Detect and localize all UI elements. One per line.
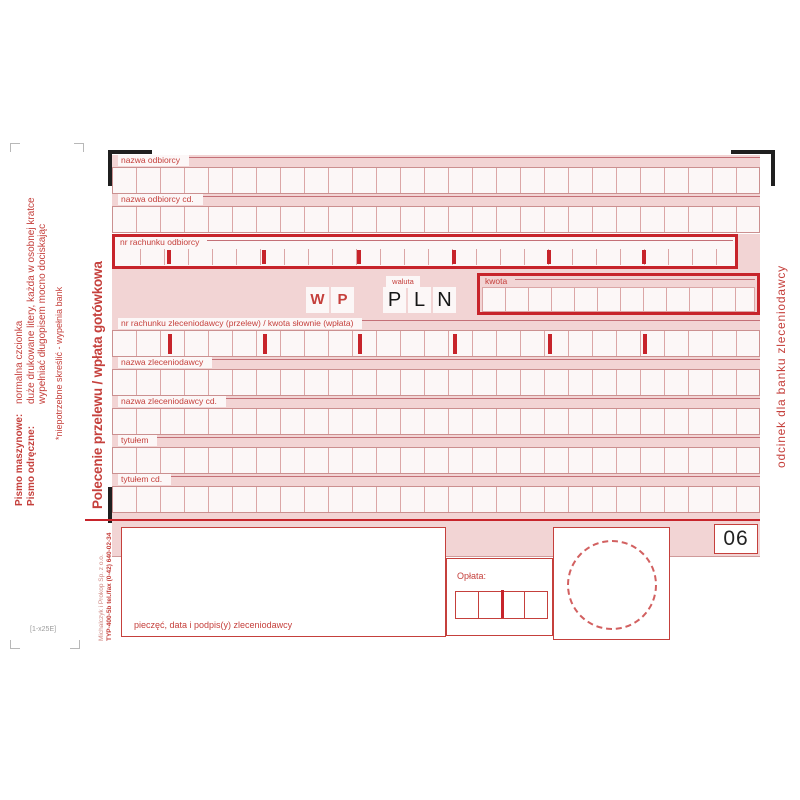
crop-mark-top-right — [74, 143, 84, 152]
row-recipient-name-cont-cells[interactable] — [112, 206, 760, 233]
row-payer-name-cont-labelband: nazwa zleceniodawcy cd. — [112, 396, 760, 408]
registration-corner-top-left — [108, 150, 152, 154]
wp-marker-w-box[interactable]: W — [306, 287, 329, 313]
fee-label: Opłata: — [457, 571, 486, 581]
amount-box: kwota — [477, 273, 760, 315]
account-group-tick — [168, 334, 172, 354]
row-transfer-title-cont-cells[interactable] — [112, 486, 760, 513]
registration-corner-top-right — [731, 150, 775, 154]
amount-cells[interactable] — [482, 287, 755, 312]
row-transfer-title-label: tytułem — [118, 435, 157, 446]
account-group-tick — [262, 250, 266, 264]
instruction-label — [37, 404, 49, 506]
print-code: [1-x25E] — [30, 626, 56, 633]
instruction-label: Pismo odręczne: — [26, 404, 38, 506]
row-recipient-name-cont-label: nazwa odbiorcy cd. — [118, 194, 203, 205]
row-recipient-account-number-label: nr rachunku odbiorcy — [120, 237, 207, 248]
payment-form-scan: Pismo maszynowe:normalna czcionka Pismo … — [0, 0, 800, 800]
instruction-text: duże drukowane litery, każda w osobnej k… — [26, 197, 38, 404]
filling-instructions: Pismo maszynowe:normalna czcionka Pismo … — [14, 170, 49, 506]
stamp-signature-box: pieczęć, data i podpis(y) zleceniodawcy — [121, 527, 446, 637]
fee-cells-divider — [501, 590, 504, 618]
fee-cell[interactable] — [478, 591, 502, 619]
wp-marker-p-box[interactable]: P — [331, 287, 354, 313]
amount-label: kwota — [485, 276, 515, 287]
row-recipient-name-cells[interactable] — [112, 167, 760, 194]
account-group-tick — [452, 250, 456, 264]
crop-mark-bottom-right — [70, 640, 80, 649]
account-group-tick — [547, 250, 551, 264]
bank-note: *niepotrzebne skreślić - wypełnia bank — [54, 287, 64, 440]
row-recipient-account-number-cells[interactable] — [117, 249, 733, 265]
instruction-label: Pismo maszynowe: — [14, 404, 26, 506]
row-recipient-name-label: nazwa odbiorcy — [118, 155, 189, 166]
crop-mark-bottom-left — [10, 640, 20, 649]
fee-cell[interactable] — [455, 591, 479, 619]
currency-letter-box: P — [383, 287, 406, 313]
account-group-tick — [358, 334, 362, 354]
round-stamp-box — [553, 527, 670, 640]
row-payer-name-cells[interactable] — [112, 369, 760, 396]
registration-corner-top-right-arm — [771, 150, 775, 186]
row-transfer-title-cont-labelband: tytułem cd. — [112, 474, 760, 486]
instruction-line: Pismo maszynowe:normalna czcionka — [14, 170, 26, 506]
instruction-line: Pismo odręczne:duże drukowane litery, ka… — [26, 170, 38, 506]
row-payer-account-or-amount-in-words-cells[interactable] — [112, 330, 760, 357]
row-recipient-name-cont-labelband: nazwa odbiorcy cd. — [112, 194, 760, 206]
crop-mark-top-left — [10, 143, 20, 152]
row-payer-account-or-amount-in-words-label: nr rachunku zleceniodawcy (przelew) / kw… — [118, 318, 362, 329]
instruction-text: wypełniać długopisem mocno dociskając — [37, 224, 49, 404]
row-transfer-title-cells[interactable] — [112, 447, 760, 474]
row-transfer-title-labelband: tytułem — [112, 435, 760, 447]
fee-box: Opłata: — [446, 558, 553, 636]
account-group-tick — [642, 250, 646, 264]
row-transfer-title-cont-label: tytułem cd. — [118, 474, 171, 485]
currency-letter-box: L — [408, 287, 431, 313]
stamp-circle-placeholder — [567, 540, 657, 630]
pink-filler-patch — [738, 234, 760, 269]
account-group-tick — [643, 334, 647, 354]
stamp-signature-label: pieczęć, data i podpis(y) zleceniodawcy — [134, 620, 292, 630]
row-amount: W P waluta P L N kwota — [112, 269, 760, 318]
fee-cell[interactable] — [501, 591, 525, 619]
row-recipient-name-labelband: nazwa odbiorcy — [112, 155, 760, 167]
account-group-tick — [357, 250, 361, 264]
row-recipient-account-number: nr rachunku odbiorcy — [112, 234, 738, 269]
row-payer-account-or-amount-in-words-labelband: nr rachunku zleceniodawcy (przelew) / kw… — [112, 318, 760, 330]
fee-cell[interactable] — [524, 591, 548, 619]
account-group-tick — [548, 334, 552, 354]
form-title: Polecenie przelewu / wpłata gotówkowa — [90, 261, 105, 509]
account-group-tick — [263, 334, 267, 354]
row-payer-name-label: nazwa zleceniodawcy — [118, 357, 212, 368]
account-group-tick — [167, 250, 171, 264]
instruction-line: wypełniać długopisem mocno dociskając — [37, 170, 49, 506]
row-payer-name-cont-cells[interactable] — [112, 408, 760, 435]
row-payer-name-cont-label: nazwa zleceniodawcy cd. — [118, 396, 226, 407]
bank-copy-strip-title: odcinek dla banku zleceniodawcy — [774, 265, 788, 468]
currency-letter-box: N — [433, 287, 456, 313]
segment-number-badge: 06 — [714, 524, 758, 554]
row-payer-name-labelband: nazwa zleceniodawcy — [112, 357, 760, 369]
printer-name: Michalczyk i Prokop Sp. z o.o. — [98, 533, 106, 641]
account-group-tick — [453, 334, 457, 354]
instruction-text: normalna czcionka — [14, 321, 26, 404]
